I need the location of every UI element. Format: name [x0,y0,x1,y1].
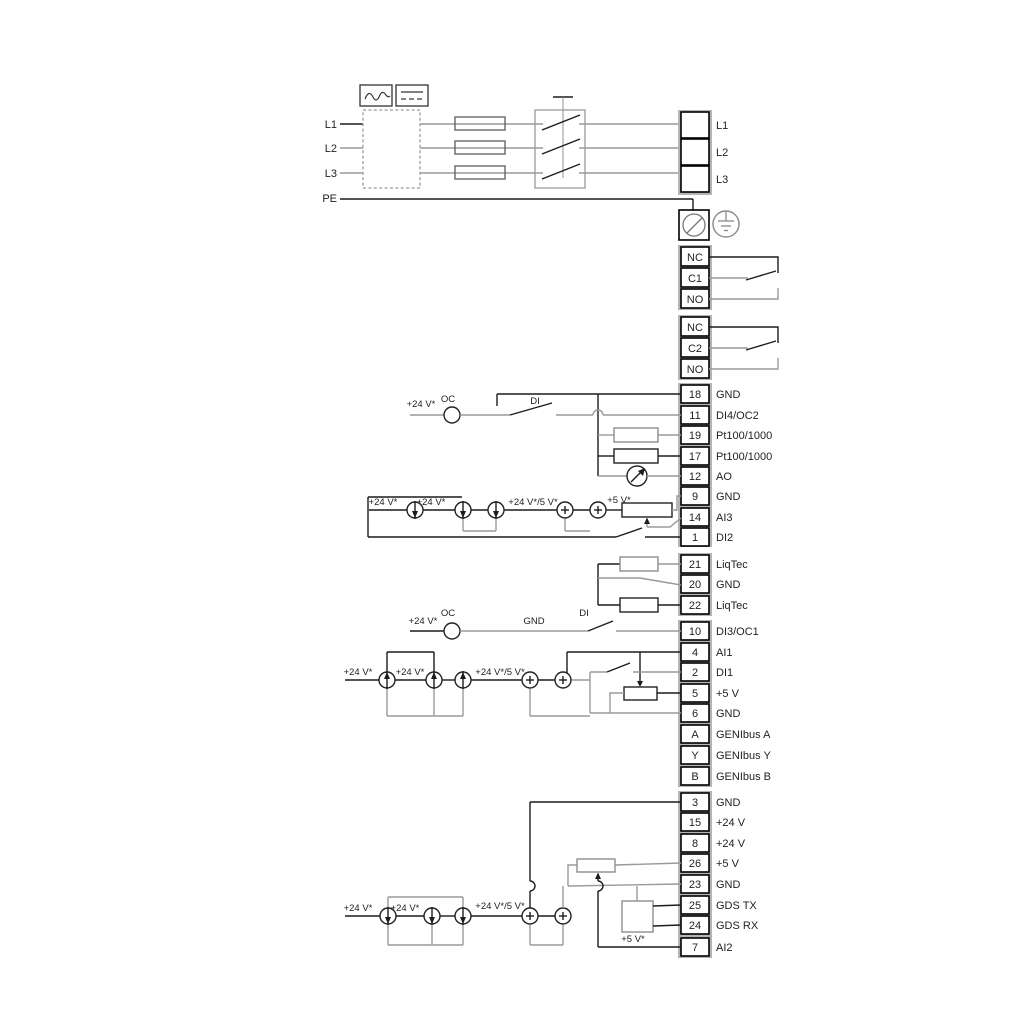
terminal-label: +5 V [716,688,740,700]
plus24-annotation: +24 V* [409,616,438,627]
plus5-annotation: +5 V* [621,934,645,945]
no-connection-hop [530,881,535,891]
terminal-label: AI1 [716,647,733,659]
di-annotation: DI [530,396,540,407]
terminal-number: 4 [692,647,698,659]
io1-terminal-block: 18 11 19 17 12 9 14 1 GND DI4/OC2 Pt100/… [678,383,772,547]
terminal-number: 22 [689,600,701,612]
dc-sensitivity-icon [396,85,428,106]
terminal-number: 17 [689,451,701,463]
terminal-label: DI2 [716,532,733,544]
terminal-number: 14 [689,512,701,524]
terminal-number: 21 [689,559,701,571]
terminal-label: DI3/OC1 [716,626,759,638]
ai1-potentiometer-icon [610,687,681,713]
terminal-number: 15 [689,817,701,829]
terminal-label: GDS TX [716,900,757,912]
plus24-annotation: +24 V* [396,667,425,678]
terminal-number: 12 [689,471,701,483]
input-wires [340,124,363,173]
terminal-label: GENIbus A [716,729,771,741]
terminal-number: 7 [692,942,698,954]
plus24-annotation: +24 V* [407,399,436,410]
io2-terminal-block: 10 4 2 5 6 A Y B DI3/OC1 AI1 DI1 +5 V GN… [678,620,771,787]
terminal-label: +24 V [716,817,746,829]
pt100-resistor-icon [614,449,658,463]
terminal-number: 8 [692,838,698,850]
terminal-number: 26 [689,858,701,870]
terminal-label: GND [716,708,741,720]
liqtec-wiring [598,557,681,612]
liqtec-terminal-block: 21 20 22 LiqTec GND LiqTec [678,553,748,616]
oc-annotation: OC [441,394,455,405]
relay2-c2: C2 [688,343,702,355]
terminal-number: 10 [689,626,701,638]
plus24or5-annotation: +24 V*/5 V* [508,497,558,508]
terminal-number: 18 [689,389,701,401]
terminal-label: Pt100/1000 [716,451,772,463]
terminal-number: A [691,729,699,741]
relay2-block: NC C2 NO [678,315,778,380]
terminal-label: GND [716,389,741,401]
open-collector-icon [444,623,460,639]
terminal-number: 23 [689,879,701,891]
disconnect-switch-icon [535,97,585,188]
output-label-l3: L3 [716,174,728,186]
ac-sensitivity-icon [360,85,392,106]
plus24-annotation: +24 V* [344,667,373,678]
pt100-resistor-icon [614,428,658,442]
input-label-l2: L2 [325,143,337,155]
relay1-nc: NC [687,252,703,264]
liqtec-sensor-icon [620,557,658,571]
terminal-label: AI2 [716,942,733,954]
io3-terminal-block: 3 15 8 26 23 25 24 7 GND +24 V +24 V +5 … [678,791,759,958]
terminal-label: AO [716,471,732,483]
terminal-number: 25 [689,900,701,912]
input-label-l3: L3 [325,168,337,180]
io2-wiring: +24 V* OC GND DI +24 V* +24 V* +24 V*/5 … [344,608,681,716]
plus24or5-annotation: +24 V*/5 V* [475,667,525,678]
terminal-label: DI1 [716,667,733,679]
terminal-label: GND [716,491,741,503]
protective-earth-icon [713,211,739,237]
schematic-canvas: L1 L2 L3 PE [0,0,1024,1024]
open-collector-icon [444,407,460,423]
io3-wiring: +5 V* +24 V* +24 V* +24 V*/5 V* [344,802,681,947]
terminal-number: 20 [689,579,701,591]
terminal-number: 6 [692,708,698,720]
relay2-no: NO [687,364,704,376]
terminal-label: GENIbus B [716,771,771,783]
terminal-number: 9 [692,491,698,503]
plus24-annotation: +24 V* [369,497,398,508]
input-label-pe: PE [322,193,337,205]
relay2-changeover-icon [709,327,778,369]
terminal-label: +24 V [716,838,746,850]
terminal-number: 1 [692,532,698,544]
terminal-label: GND [716,879,741,891]
relay1-block: NC C1 NO [678,245,778,310]
power-section: L1 L2 L3 PE [322,85,739,240]
ai3-potentiometer-icon [622,496,681,527]
plus24-annotation: +24 V* [344,903,373,914]
io1-wiring: DI +24 V* OC +24 V* +24 V* +24 V*/5 V* + [368,394,681,537]
terminal-number: Y [691,750,699,762]
terminal-label: DI4/OC2 [716,410,759,422]
earth-terminal-icon [679,210,709,240]
terminal-number: 24 [689,920,701,932]
terminal-label: GND [716,797,741,809]
terminal-number: 19 [689,430,701,442]
terminal-number: 11 [689,410,700,422]
rcd-box [360,85,428,188]
current-source-icon [380,907,471,925]
output-label-l2: L2 [716,147,728,159]
terminal-label: GND [716,579,741,591]
terminal-label: GENIbus Y [716,750,771,762]
terminal-label: LiqTec [716,559,748,571]
terminal-label: Pt100/1000 [716,430,772,442]
relay2-nc: NC [687,322,703,334]
liqtec-sensor-icon [620,598,658,612]
gds-sensor-icon: +5 V* [621,886,681,945]
terminal-label: +5 V [716,858,740,870]
terminal-label: AI3 [716,512,733,524]
wiring-diagram: L1 L2 L3 PE [0,0,1024,1024]
relay1-changeover-icon [709,257,778,299]
power-terminal-block: L1 L2 L3 [678,110,728,195]
oc-annotation: OC [441,608,455,619]
output-label-l1: L1 [716,120,728,132]
terminal-label: GDS RX [716,920,759,932]
relay1-no: NO [687,294,704,306]
di-annotation: DI [579,608,589,619]
gnd-annotation: GND [523,616,544,627]
analog-output-meter-icon [627,466,647,486]
terminal-number: 2 [692,667,698,679]
terminal-number: 5 [692,688,698,700]
input-label-l1: L1 [325,119,337,131]
terminal-label: LiqTec [716,600,748,612]
ai2-potentiometer-icon [568,859,681,886]
terminal-number: B [691,771,698,783]
pe-wire [340,199,693,210]
plus24or5-annotation: +24 V*/5 V* [475,901,525,912]
terminal-number: 3 [692,797,698,809]
relay1-c1: C1 [688,273,702,285]
